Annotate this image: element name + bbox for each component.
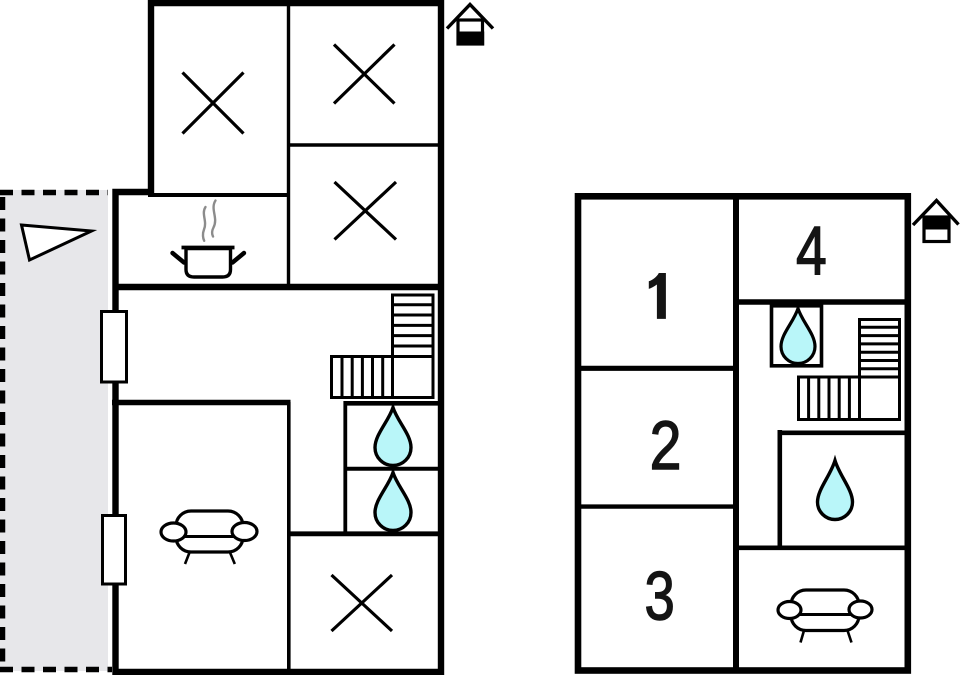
svg-text:4: 4 — [796, 212, 827, 289]
svg-text:3: 3 — [645, 558, 675, 635]
svg-text:2: 2 — [650, 408, 682, 484]
